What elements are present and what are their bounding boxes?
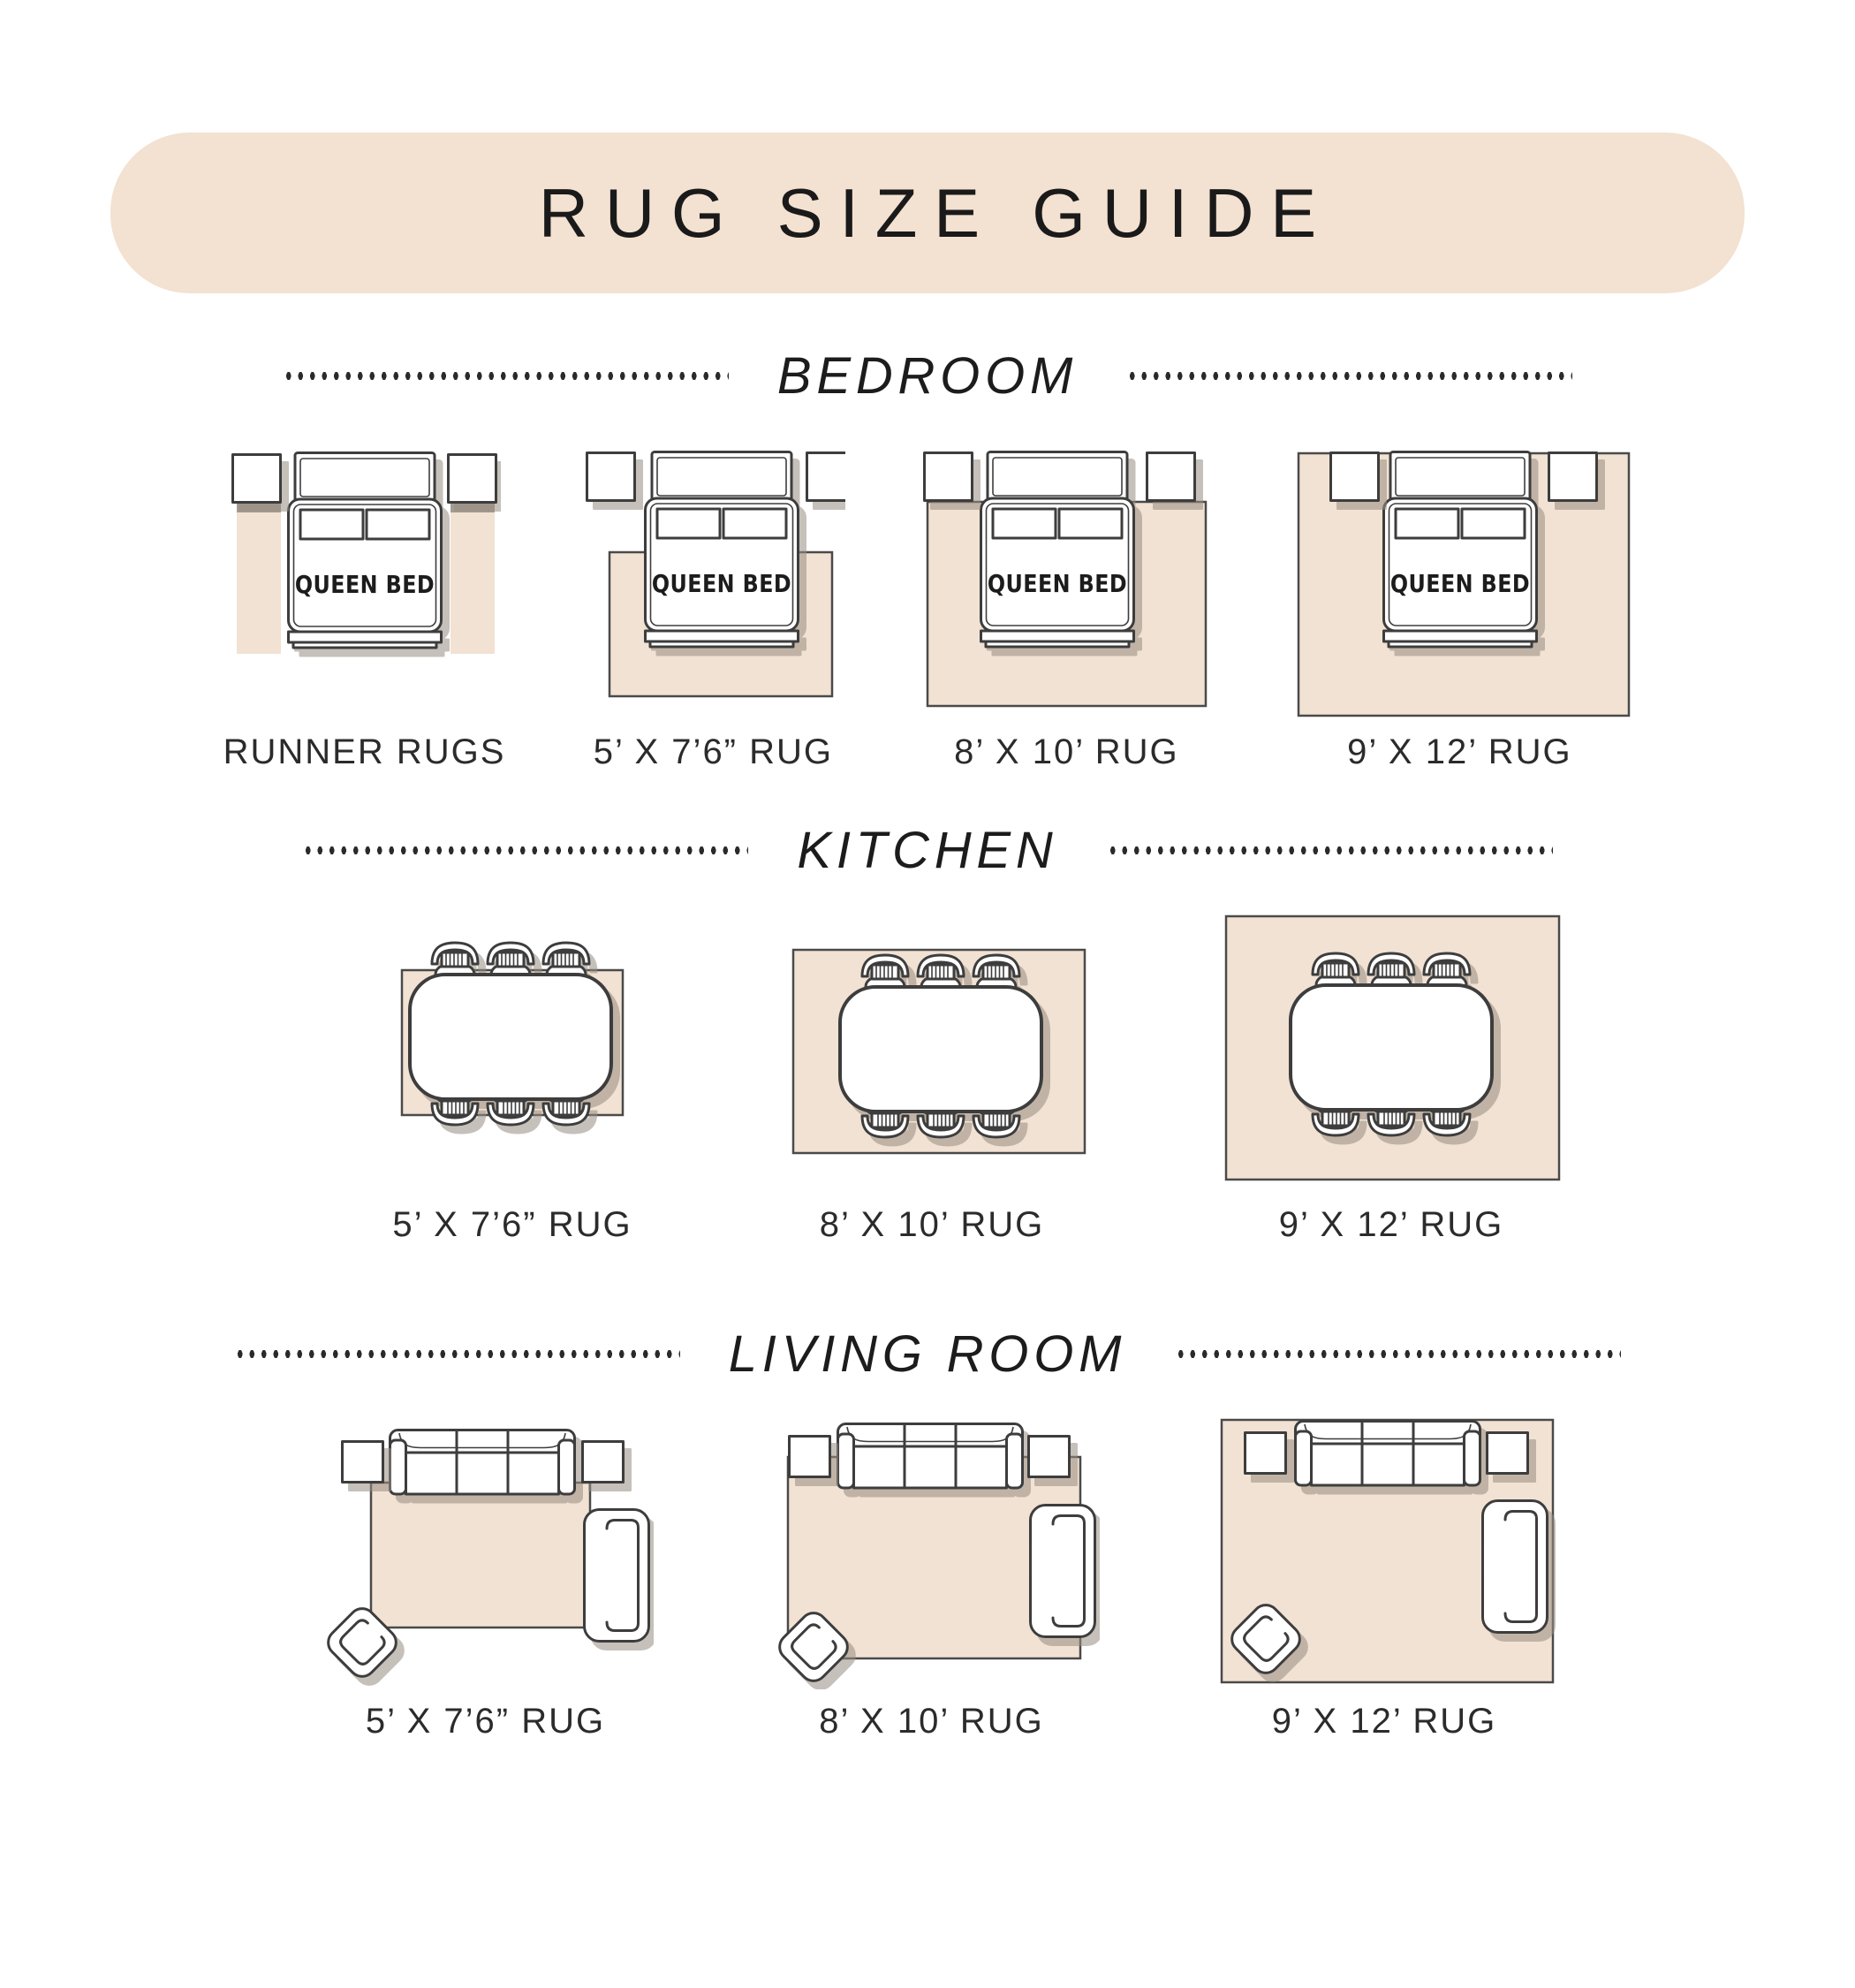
living-9x12-figure: 9’ X 12’ RUG — [1210, 1415, 1559, 1741]
area-rug — [371, 1483, 590, 1628]
living-room-figures-row: 5’ X 7’6” RUG 8’ X 10’ RUG — [11, 1415, 1855, 1741]
dining-table-icon — [410, 943, 611, 1125]
nightstand-icon — [233, 455, 281, 503]
figure-caption: 8’ X 10’ RUG — [954, 732, 1178, 772]
armchair-icon — [584, 1510, 648, 1642]
figure-caption: 9’ X 12’ RUG — [1347, 732, 1571, 772]
kitchen-heading: KITCHEN — [797, 821, 1057, 880]
sofa-icon — [1295, 1422, 1480, 1486]
armchair-icon — [1030, 1506, 1094, 1637]
queen-bed-icon — [646, 452, 799, 648]
figure-caption: 5’ X 7’6” RUG — [392, 1205, 632, 1245]
figure-caption: 8’ X 10’ RUG — [820, 1205, 1044, 1245]
living-set-5x76-rug-diagram — [318, 1415, 654, 1689]
nightstand-icon — [807, 453, 846, 501]
dining-table-icon — [840, 955, 1041, 1137]
side-table-icon — [342, 1442, 382, 1483]
kitchen-8x10-figure: 8’ X 10’ RUG — [777, 910, 1086, 1245]
nightstand-icon — [587, 453, 635, 501]
nightstand-icon — [1549, 453, 1597, 501]
living-room-heading: LIVING ROOM — [729, 1324, 1127, 1384]
figure-caption: 9’ X 12’ RUG — [1272, 1702, 1496, 1741]
title-banner: RUG SIZE GUIDE — [110, 133, 1745, 293]
dotted-divider — [1126, 371, 1572, 381]
bedroom-section-header: BEDROOM — [0, 346, 1855, 406]
bedroom-8x10-figure: 8’ X 10’ RUG — [920, 437, 1212, 772]
armchair-icon — [1482, 1501, 1547, 1633]
dotted-divider — [234, 1349, 680, 1359]
dotted-divider — [1107, 846, 1553, 855]
living-set-9x12-rug-diagram — [1210, 1415, 1559, 1689]
rug-size-guide-infographic: RUG SIZE GUIDE BEDROOM RUNNER RUGS — [0, 133, 1855, 1988]
nightstand-icon — [1147, 453, 1195, 501]
sofa-icon — [837, 1424, 1022, 1489]
dining-set-5x76-rug-diagram — [380, 910, 645, 1193]
sofa-icon — [390, 1430, 574, 1495]
dining-set-9x12-rug-diagram — [1219, 910, 1563, 1193]
living-5x76-figure: 5’ X 7’6” RUG — [318, 1415, 654, 1741]
bedroom-figures-row: RUNNER RUGS 5’ X 7’6” RUG — [0, 437, 1855, 772]
dotted-divider — [283, 371, 729, 381]
runner-rug — [450, 502, 495, 654]
queen-bed-icon — [981, 452, 1134, 648]
kitchen-figures-row: 5’ X 7’6” RUG 8’ X 10’ RUG 9’ X 12’ RUG — [44, 910, 1855, 1245]
living-8x10-figure: 8’ X 10’ RUG — [764, 1415, 1100, 1741]
queen-bed-5x76-rug-diagram — [580, 437, 845, 720]
dotted-divider — [302, 846, 748, 855]
queen-bed-runner-rugs-diagram — [227, 437, 501, 720]
dotted-divider — [1175, 1349, 1621, 1359]
queen-bed-8x10-rug-diagram — [920, 437, 1212, 720]
kitchen-9x12-figure: 9’ X 12’ RUG — [1219, 910, 1563, 1245]
dining-table-icon — [1291, 953, 1492, 1135]
bedroom-heading: BEDROOM — [777, 346, 1078, 406]
nightstand-icon — [1331, 453, 1379, 501]
figure-caption: 9’ X 12’ RUG — [1279, 1205, 1503, 1245]
kitchen-5x76-figure: 5’ X 7’6” RUG — [380, 910, 645, 1245]
side-table-icon — [1487, 1433, 1527, 1474]
side-table-icon — [1028, 1437, 1069, 1477]
queen-bed-9x12-rug-diagram — [1287, 437, 1632, 720]
kitchen-section-header: KITCHEN — [0, 821, 1855, 880]
dining-set-8x10-rug-diagram — [777, 910, 1086, 1193]
side-table-icon — [582, 1442, 623, 1483]
figure-caption: RUNNER RUGS — [223, 732, 506, 772]
queen-bed-icon — [289, 453, 442, 649]
bedroom-9x12-figure: 9’ X 12’ RUG — [1287, 437, 1632, 772]
figure-caption: 8’ X 10’ RUG — [819, 1702, 1043, 1741]
page-title: RUG SIZE GUIDE — [522, 173, 1333, 254]
queen-bed-icon — [1384, 452, 1537, 648]
figure-caption: 5’ X 7’6” RUG — [366, 1702, 605, 1741]
figure-caption: 5’ X 7’6” RUG — [594, 732, 833, 772]
bedroom-5x76-figure: 5’ X 7’6” RUG — [580, 437, 845, 772]
nightstand-icon — [449, 455, 496, 503]
nightstand-icon — [925, 453, 973, 501]
bedroom-runner-rugs-figure: RUNNER RUGS — [223, 437, 506, 772]
side-table-icon — [789, 1437, 829, 1477]
living-set-8x10-rug-diagram — [764, 1415, 1100, 1689]
runner-rug — [237, 502, 281, 654]
side-table-icon — [1245, 1433, 1285, 1474]
living-room-section-header: LIVING ROOM — [0, 1324, 1855, 1384]
